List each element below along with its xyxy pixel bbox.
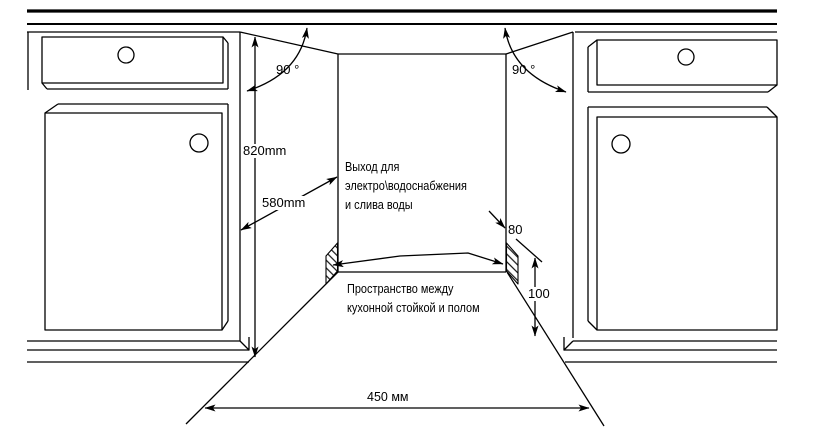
utilities-outlet-label-line3: и слива воды (345, 195, 467, 214)
utilities-outlet-label-line2: электро\водоснабжения (345, 176, 467, 195)
plinth-lines (27, 337, 777, 362)
niche-width-label: 450 мм (367, 390, 409, 404)
plinth-hatch-right (507, 243, 519, 284)
left-cabinet-drawer (42, 37, 228, 89)
right-cabinet-drawer (588, 40, 777, 92)
right-cabinet-door (588, 107, 777, 330)
left-drawer-knob-icon (118, 47, 134, 63)
diagram-linework (0, 0, 830, 441)
right-drawer-knob-icon (678, 49, 694, 65)
niche-height-label: 820mm (242, 144, 287, 158)
utilities-outlet-label-line1: Выход для (345, 157, 467, 176)
plinth-depth-label: 80 (507, 223, 523, 237)
utilities-outlet-label: Выход для электро\водоснабжения и слива … (345, 157, 490, 214)
niche-depth-label: 580mm (261, 196, 306, 210)
plinth-space-label: Пространство между кухонной стойкой и по… (347, 279, 505, 317)
angle-label-right: 90 ° (512, 63, 535, 77)
angle-label-left: 90 ° (276, 63, 299, 77)
right-door-knob-icon (612, 135, 630, 153)
left-door-knob-icon (190, 134, 208, 152)
plinth-hatch-left (326, 243, 338, 284)
plinth-space-label-line2: кухонной стойкой и полом (347, 298, 480, 317)
countertop-lines (27, 11, 777, 90)
installation-diagram: 90 ° 90 ° 820mm 580mm 80 100 450 мм Выхо… (0, 0, 830, 441)
plinth-space-label-line1: Пространство между (347, 279, 480, 298)
angle-arc-left (247, 28, 307, 91)
left-cabinet-door (45, 104, 228, 330)
plinth-space-indicator-line (333, 253, 503, 265)
plinth-height-label: 100 (527, 287, 551, 301)
